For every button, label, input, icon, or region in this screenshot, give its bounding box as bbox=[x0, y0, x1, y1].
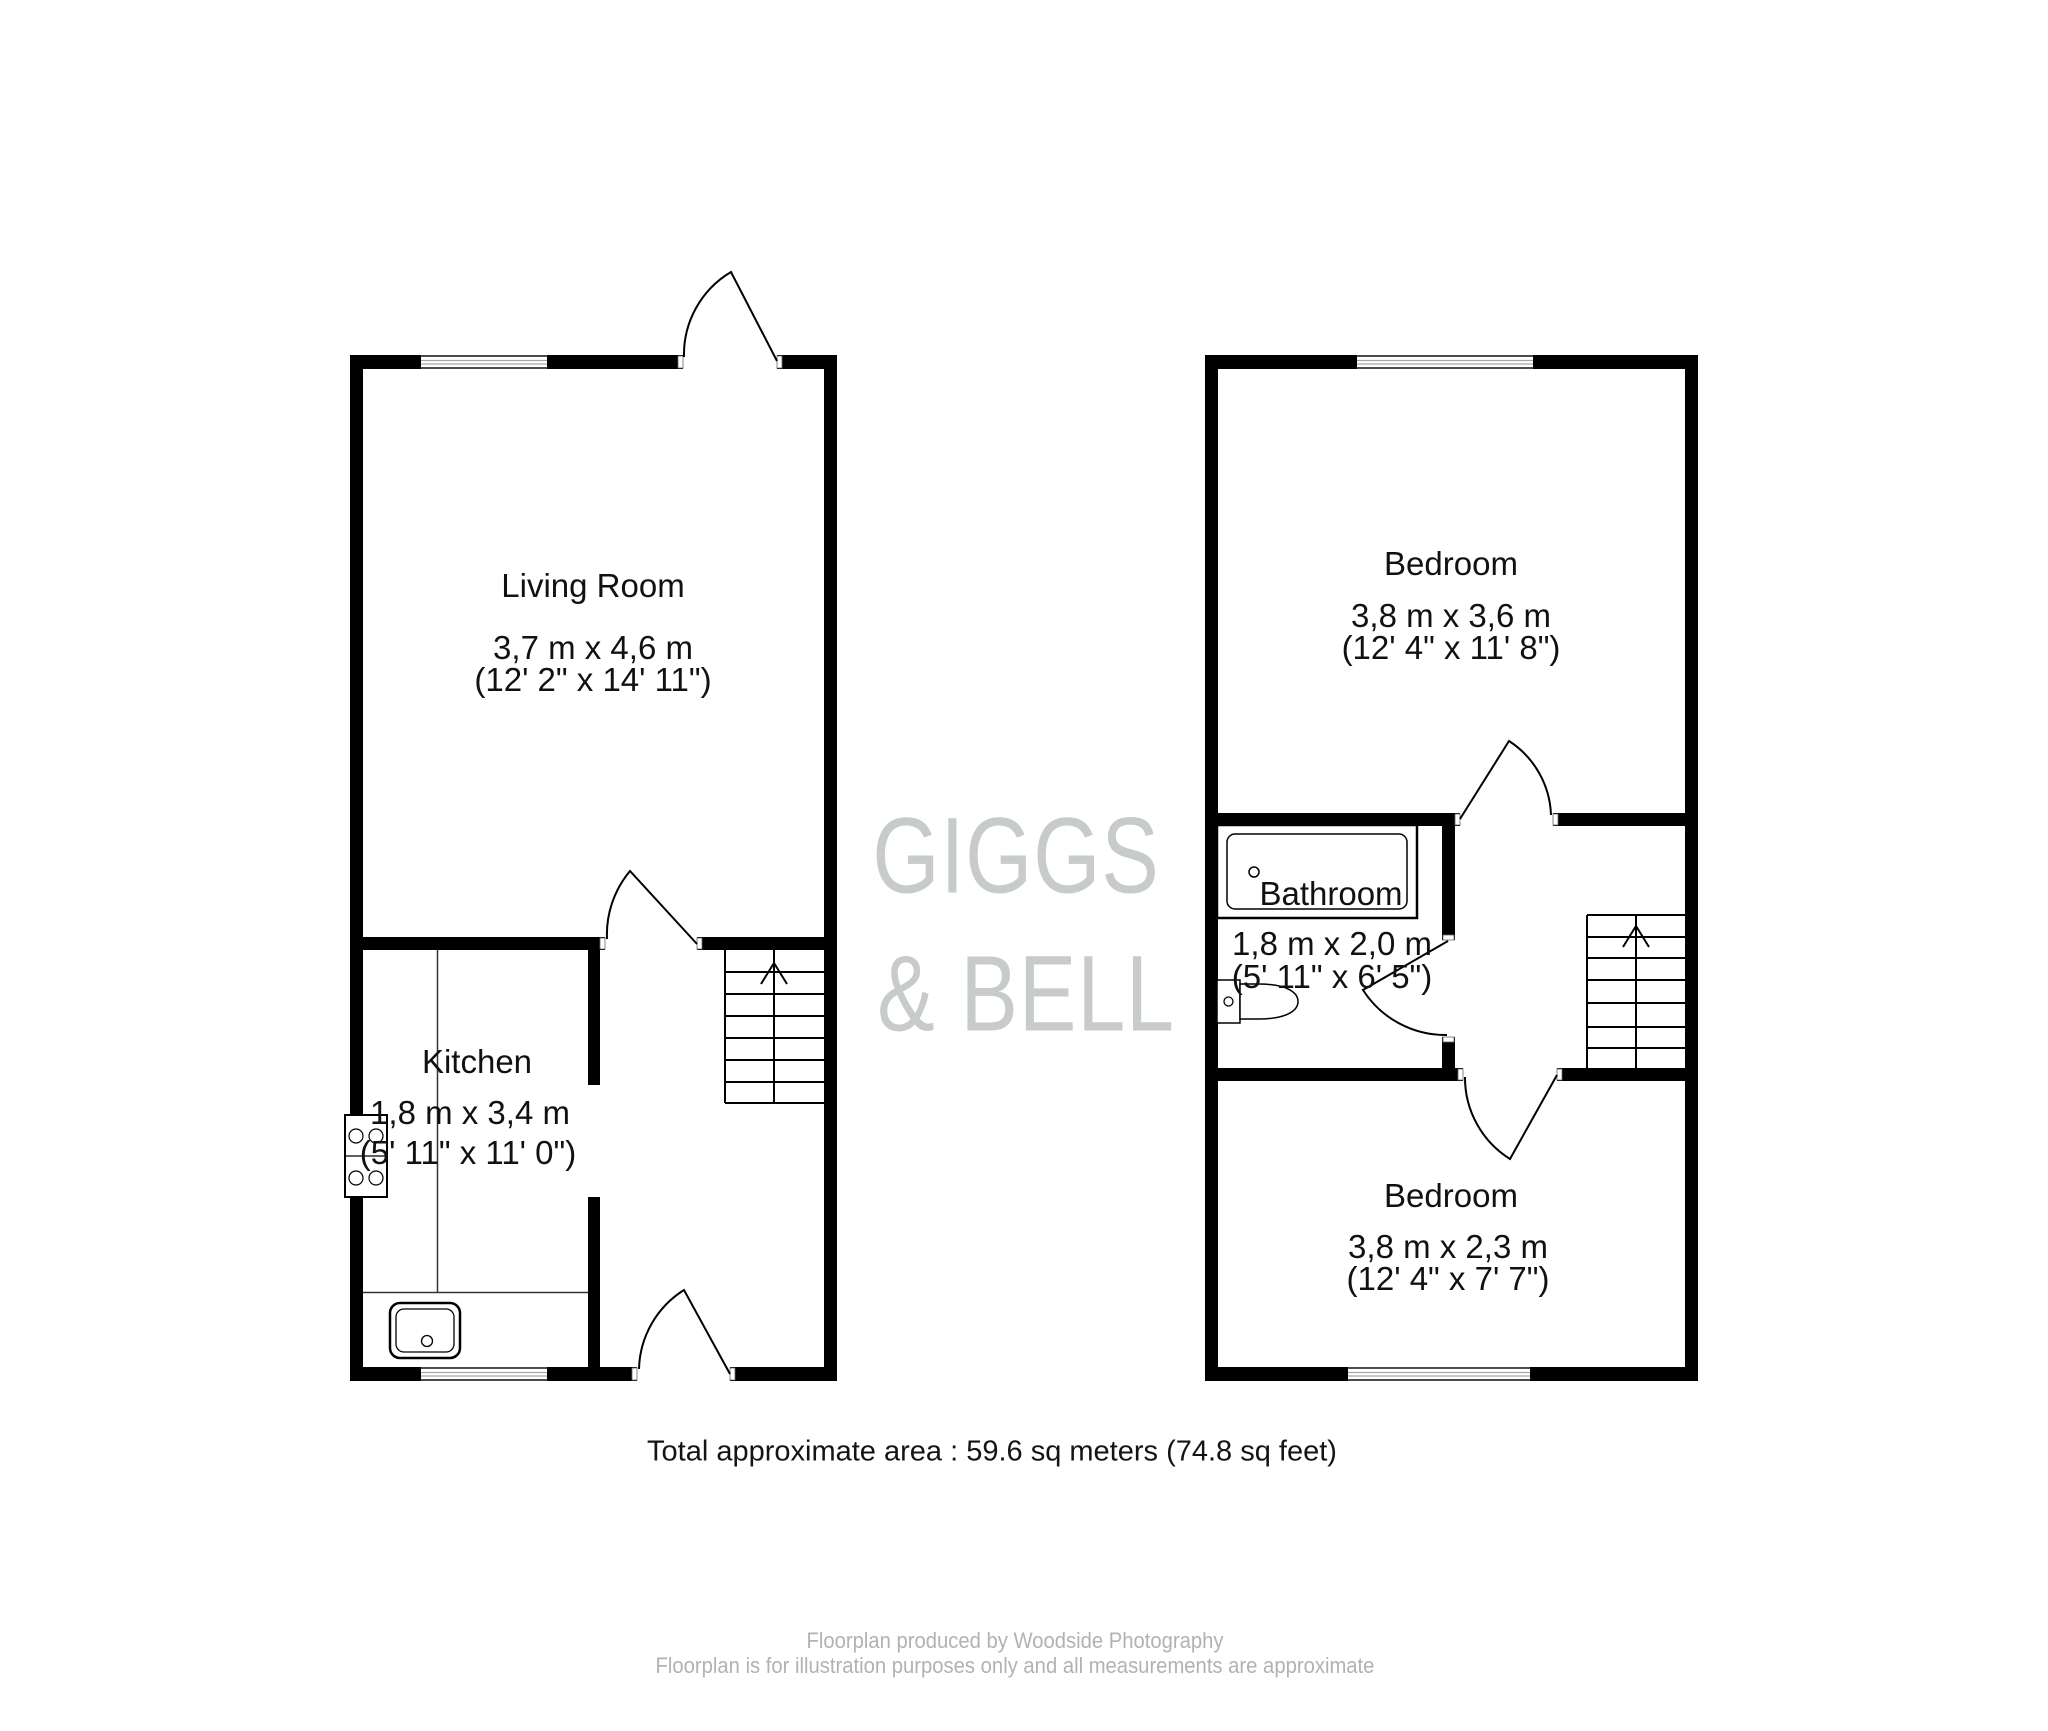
room-dim-imperial-living-room: (12' 2" x 14' 11") bbox=[474, 662, 711, 698]
door-jamb bbox=[1443, 814, 1562, 1080]
room-label-bedroom-back: Bedroom bbox=[1384, 1178, 1518, 1214]
footer-disclaimer-text: Floorplan is for illustration purposes o… bbox=[656, 1653, 1375, 1679]
footer-credit-text: Floorplan produced by Woodside Photograp… bbox=[806, 1628, 1223, 1654]
room-dim-imperial-kitchen: (5' 11" x 11' 0") bbox=[360, 1135, 576, 1171]
door-jamb bbox=[600, 356, 782, 1380]
sink-icon bbox=[390, 1303, 460, 1358]
wall-hall-divider bbox=[588, 950, 600, 1085]
door-opening bbox=[637, 1367, 730, 1381]
wall-bedroom-divider bbox=[1553, 813, 1685, 826]
room-label-kitchen: Kitchen bbox=[422, 1044, 532, 1080]
room-dim-metric-kitchen: 1,8 m x 3,4 m bbox=[370, 1095, 570, 1131]
kitchen-door-arc bbox=[607, 871, 697, 944]
window bbox=[421, 1367, 547, 1381]
wall bbox=[350, 355, 363, 1381]
wall-kitchen-divider bbox=[697, 937, 824, 950]
room-dim-imperial-bedroom-back: (12' 4" x 7' 7") bbox=[1347, 1261, 1550, 1297]
wall bbox=[824, 355, 837, 1381]
room-dim-imperial-bedroom-front: (12' 4" x 11' 8") bbox=[1342, 630, 1561, 666]
total-area-text: Total approximate area : 59.6 sq meters … bbox=[647, 1436, 1337, 1469]
window bbox=[1357, 355, 1533, 369]
floorplan-drawing bbox=[0, 0, 2048, 1731]
wall-landing-divider bbox=[1218, 1068, 1463, 1081]
stairs-first bbox=[1587, 915, 1685, 1068]
bedroom-back-door-arc bbox=[1465, 1075, 1557, 1159]
room-dim-imperial-bathroom: (5' 11" x 6' 5") bbox=[1232, 959, 1433, 995]
wall bbox=[1685, 355, 1698, 1381]
bedroom-front-door-arc bbox=[1460, 741, 1551, 819]
room-label-living-room: Living Room bbox=[501, 568, 684, 604]
wall-kitchen-divider bbox=[363, 937, 605, 950]
room-label-bathroom: Bathroom bbox=[1259, 876, 1402, 912]
wall-hall-divider bbox=[588, 1197, 600, 1367]
entry-door-arc bbox=[684, 272, 777, 361]
back-door-arc bbox=[639, 1290, 730, 1374]
window bbox=[421, 355, 547, 369]
door-opening bbox=[683, 355, 777, 369]
window bbox=[1348, 1367, 1530, 1381]
wall-landing-divider bbox=[1557, 1068, 1685, 1081]
wall-bathroom bbox=[1442, 826, 1455, 940]
room-label-bedroom-front: Bedroom bbox=[1384, 546, 1518, 582]
floorplan-canvas: GIGGS & BELL bbox=[0, 0, 2048, 1731]
stairs-ground bbox=[725, 950, 824, 1103]
ground-floor-plan bbox=[345, 272, 837, 1381]
room-dim-metric-bathroom: 1,8 m x 2,0 m bbox=[1232, 926, 1432, 962]
